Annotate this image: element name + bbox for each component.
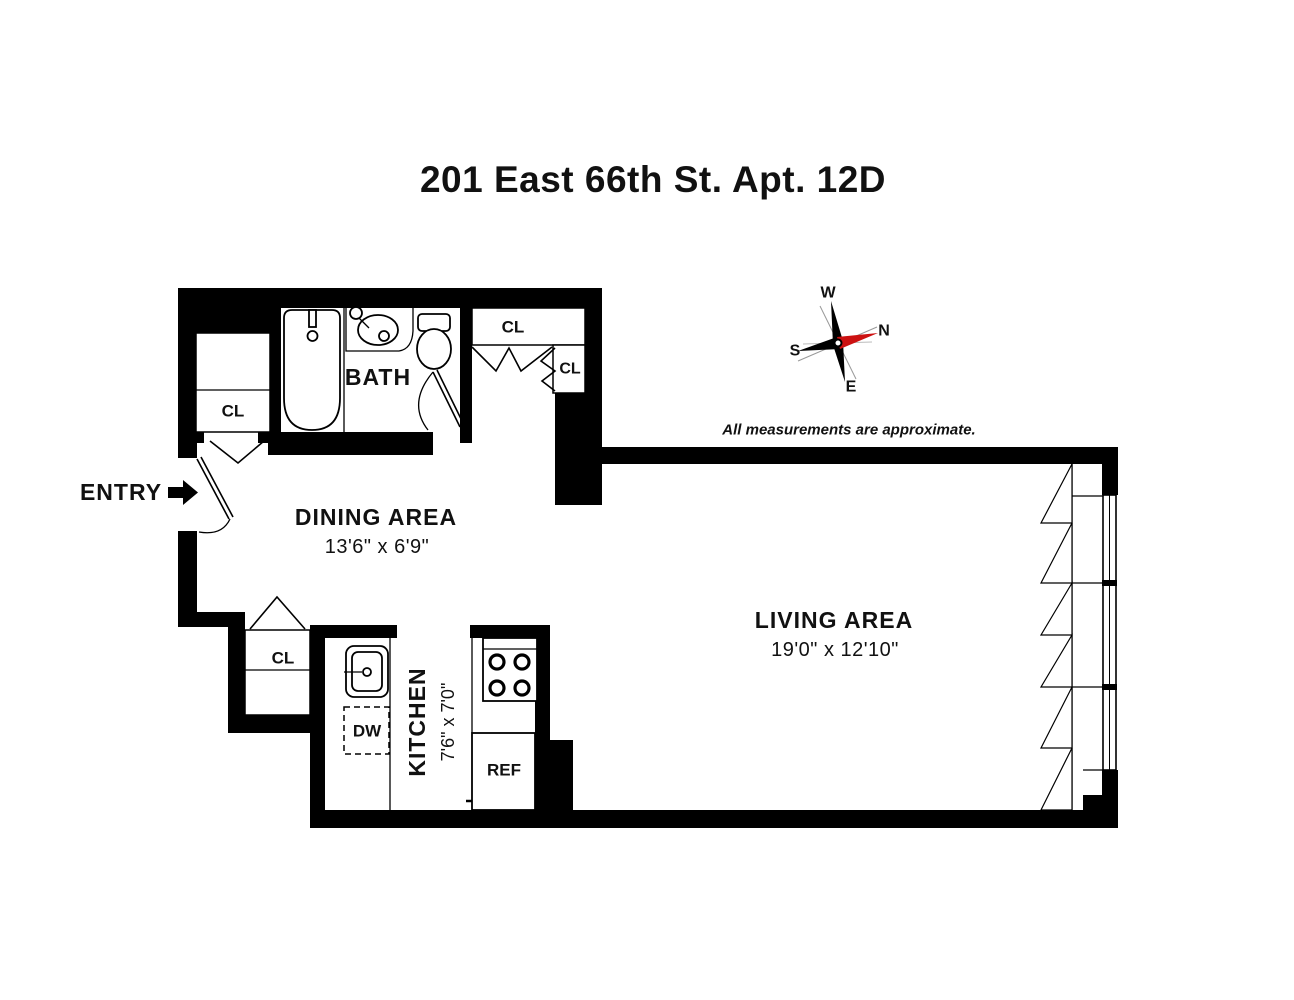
living-area-dimensions: 19'0" x 12'10" — [771, 639, 899, 661]
dishwasher: DW — [344, 707, 389, 754]
hall-closet-small: CL — [541, 345, 585, 393]
bath-label: BATH — [345, 364, 411, 390]
compass-south-label: S — [790, 343, 801, 360]
dining-area-dimensions: 13'6" x 6'9" — [325, 536, 430, 558]
kitchen-sink — [344, 646, 388, 697]
dining-closet-label: CL — [272, 649, 295, 668]
bath-room: BATH — [284, 307, 464, 432]
entry-label: ENTRY — [80, 479, 162, 505]
entry-arrow-icon — [168, 480, 198, 505]
hall-closet-bifold-doors — [472, 347, 552, 371]
hall-closet-label: CL — [502, 318, 525, 337]
casement-window-swings — [1041, 464, 1072, 810]
hall-closet-small-label: CL — [559, 361, 581, 378]
compass-west-label: W — [820, 285, 836, 302]
bath-sink — [346, 307, 413, 351]
compass-east-label: E — [846, 379, 857, 396]
living-area-label: LIVING AREA — [755, 607, 913, 633]
kitchen-dimensions: 7'6" x 7'0" — [438, 683, 458, 762]
compass-north-label: N — [878, 323, 890, 340]
compass-rose: W N S E — [790, 285, 890, 396]
dining-area: DINING AREA 13'6" x 6'9" — [295, 504, 457, 558]
plan-title: 201 East 66th St. Apt. 12D — [420, 159, 886, 200]
entry-door — [197, 457, 233, 533]
bath-door — [419, 370, 464, 430]
entry-area: ENTRY — [80, 457, 233, 533]
window-wall — [1041, 464, 1117, 810]
refrigerator-label: REF — [487, 761, 521, 780]
entry-closet-label: CL — [222, 402, 245, 421]
floor-plan-drawing: 201 East 66th St. Apt. 12D — [0, 0, 1294, 1000]
dishwasher-label: DW — [353, 722, 382, 741]
kitchen-room: DW REF KITCHEN 7'6" x 7'0" — [344, 638, 537, 810]
kitchen-label: KITCHEN — [404, 667, 430, 776]
refrigerator: REF — [466, 733, 535, 810]
dining-area-label: DINING AREA — [295, 504, 457, 530]
compass-arm-north — [837, 333, 878, 349]
bathtub — [284, 310, 340, 430]
stove — [483, 638, 537, 701]
dining-closet-doors — [250, 597, 305, 629]
entry-closet-doors — [210, 441, 264, 463]
toilet — [417, 314, 451, 369]
living-area: LIVING AREA 19'0" x 12'10" — [755, 607, 913, 661]
measurements-disclaimer: All measurements are approximate. — [721, 422, 975, 439]
dining-closet: CL — [245, 597, 310, 715]
floor-plan-page: 201 East 66th St. Apt. 12D — [0, 0, 1294, 1000]
entry-closet: CL — [196, 333, 270, 463]
